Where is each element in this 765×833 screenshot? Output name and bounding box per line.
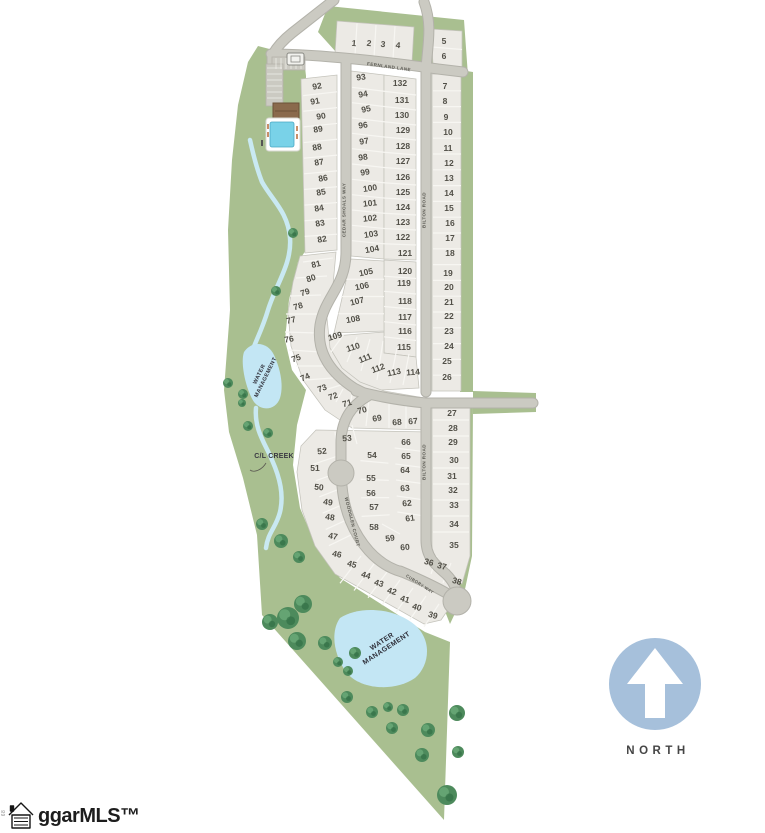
- lounge-chair: [267, 132, 269, 137]
- mls-logo-text: ggarMLS™: [38, 806, 140, 828]
- tree-icon: [292, 232, 296, 236]
- tree-icon: [286, 616, 295, 625]
- tree-icon: [269, 621, 275, 627]
- tree-icon: [275, 290, 279, 294]
- tree-icon: [457, 751, 462, 756]
- plat-map-graphic: [0, 0, 765, 833]
- tree-icon: [337, 661, 341, 665]
- tree-icon: [261, 523, 266, 528]
- cul-de-sac-woodglen: [328, 460, 354, 486]
- mls-logo: ggarMLS™: [4, 800, 140, 828]
- road-bilton-upper: [424, 2, 429, 392]
- flag-marker: [261, 140, 263, 146]
- block-lots-82-92: [301, 75, 337, 253]
- green-strip-right-upper: [460, 70, 473, 392]
- tree-icon: [387, 706, 391, 710]
- tree-icon: [324, 642, 330, 648]
- lounge-chair: [296, 126, 298, 131]
- block-lots-27-38: [432, 403, 470, 584]
- tree-icon: [296, 640, 303, 647]
- cul-de-sac-cubory: [443, 587, 471, 615]
- tree-icon: [456, 712, 462, 718]
- tree-icon: [402, 709, 407, 714]
- mail-kiosk: [287, 53, 304, 65]
- tree-icon: [446, 794, 454, 802]
- tree-icon: [427, 729, 433, 735]
- site-plan-image: 1234567891011121314151617181920212223242…: [0, 0, 765, 833]
- tree-icon: [346, 696, 351, 701]
- tree-icon: [242, 393, 246, 397]
- tree-icon: [354, 652, 359, 657]
- tree-icon: [421, 754, 427, 760]
- tree-icon: [267, 432, 271, 436]
- parking-lot-side: [266, 64, 283, 106]
- north-arrow: [609, 638, 701, 730]
- pool: [270, 122, 294, 147]
- tree-icon: [227, 382, 231, 386]
- lounge-chair: [296, 134, 298, 139]
- tree-icon: [371, 711, 376, 716]
- tree-icon: [298, 556, 303, 561]
- lounge-chair: [267, 124, 269, 129]
- tree-icon: [247, 425, 251, 429]
- tree-icon: [347, 670, 351, 674]
- tree-icon: [280, 540, 286, 546]
- tree-icon: [241, 402, 244, 405]
- tree-icon: [391, 727, 396, 732]
- tree-icon: [302, 603, 309, 610]
